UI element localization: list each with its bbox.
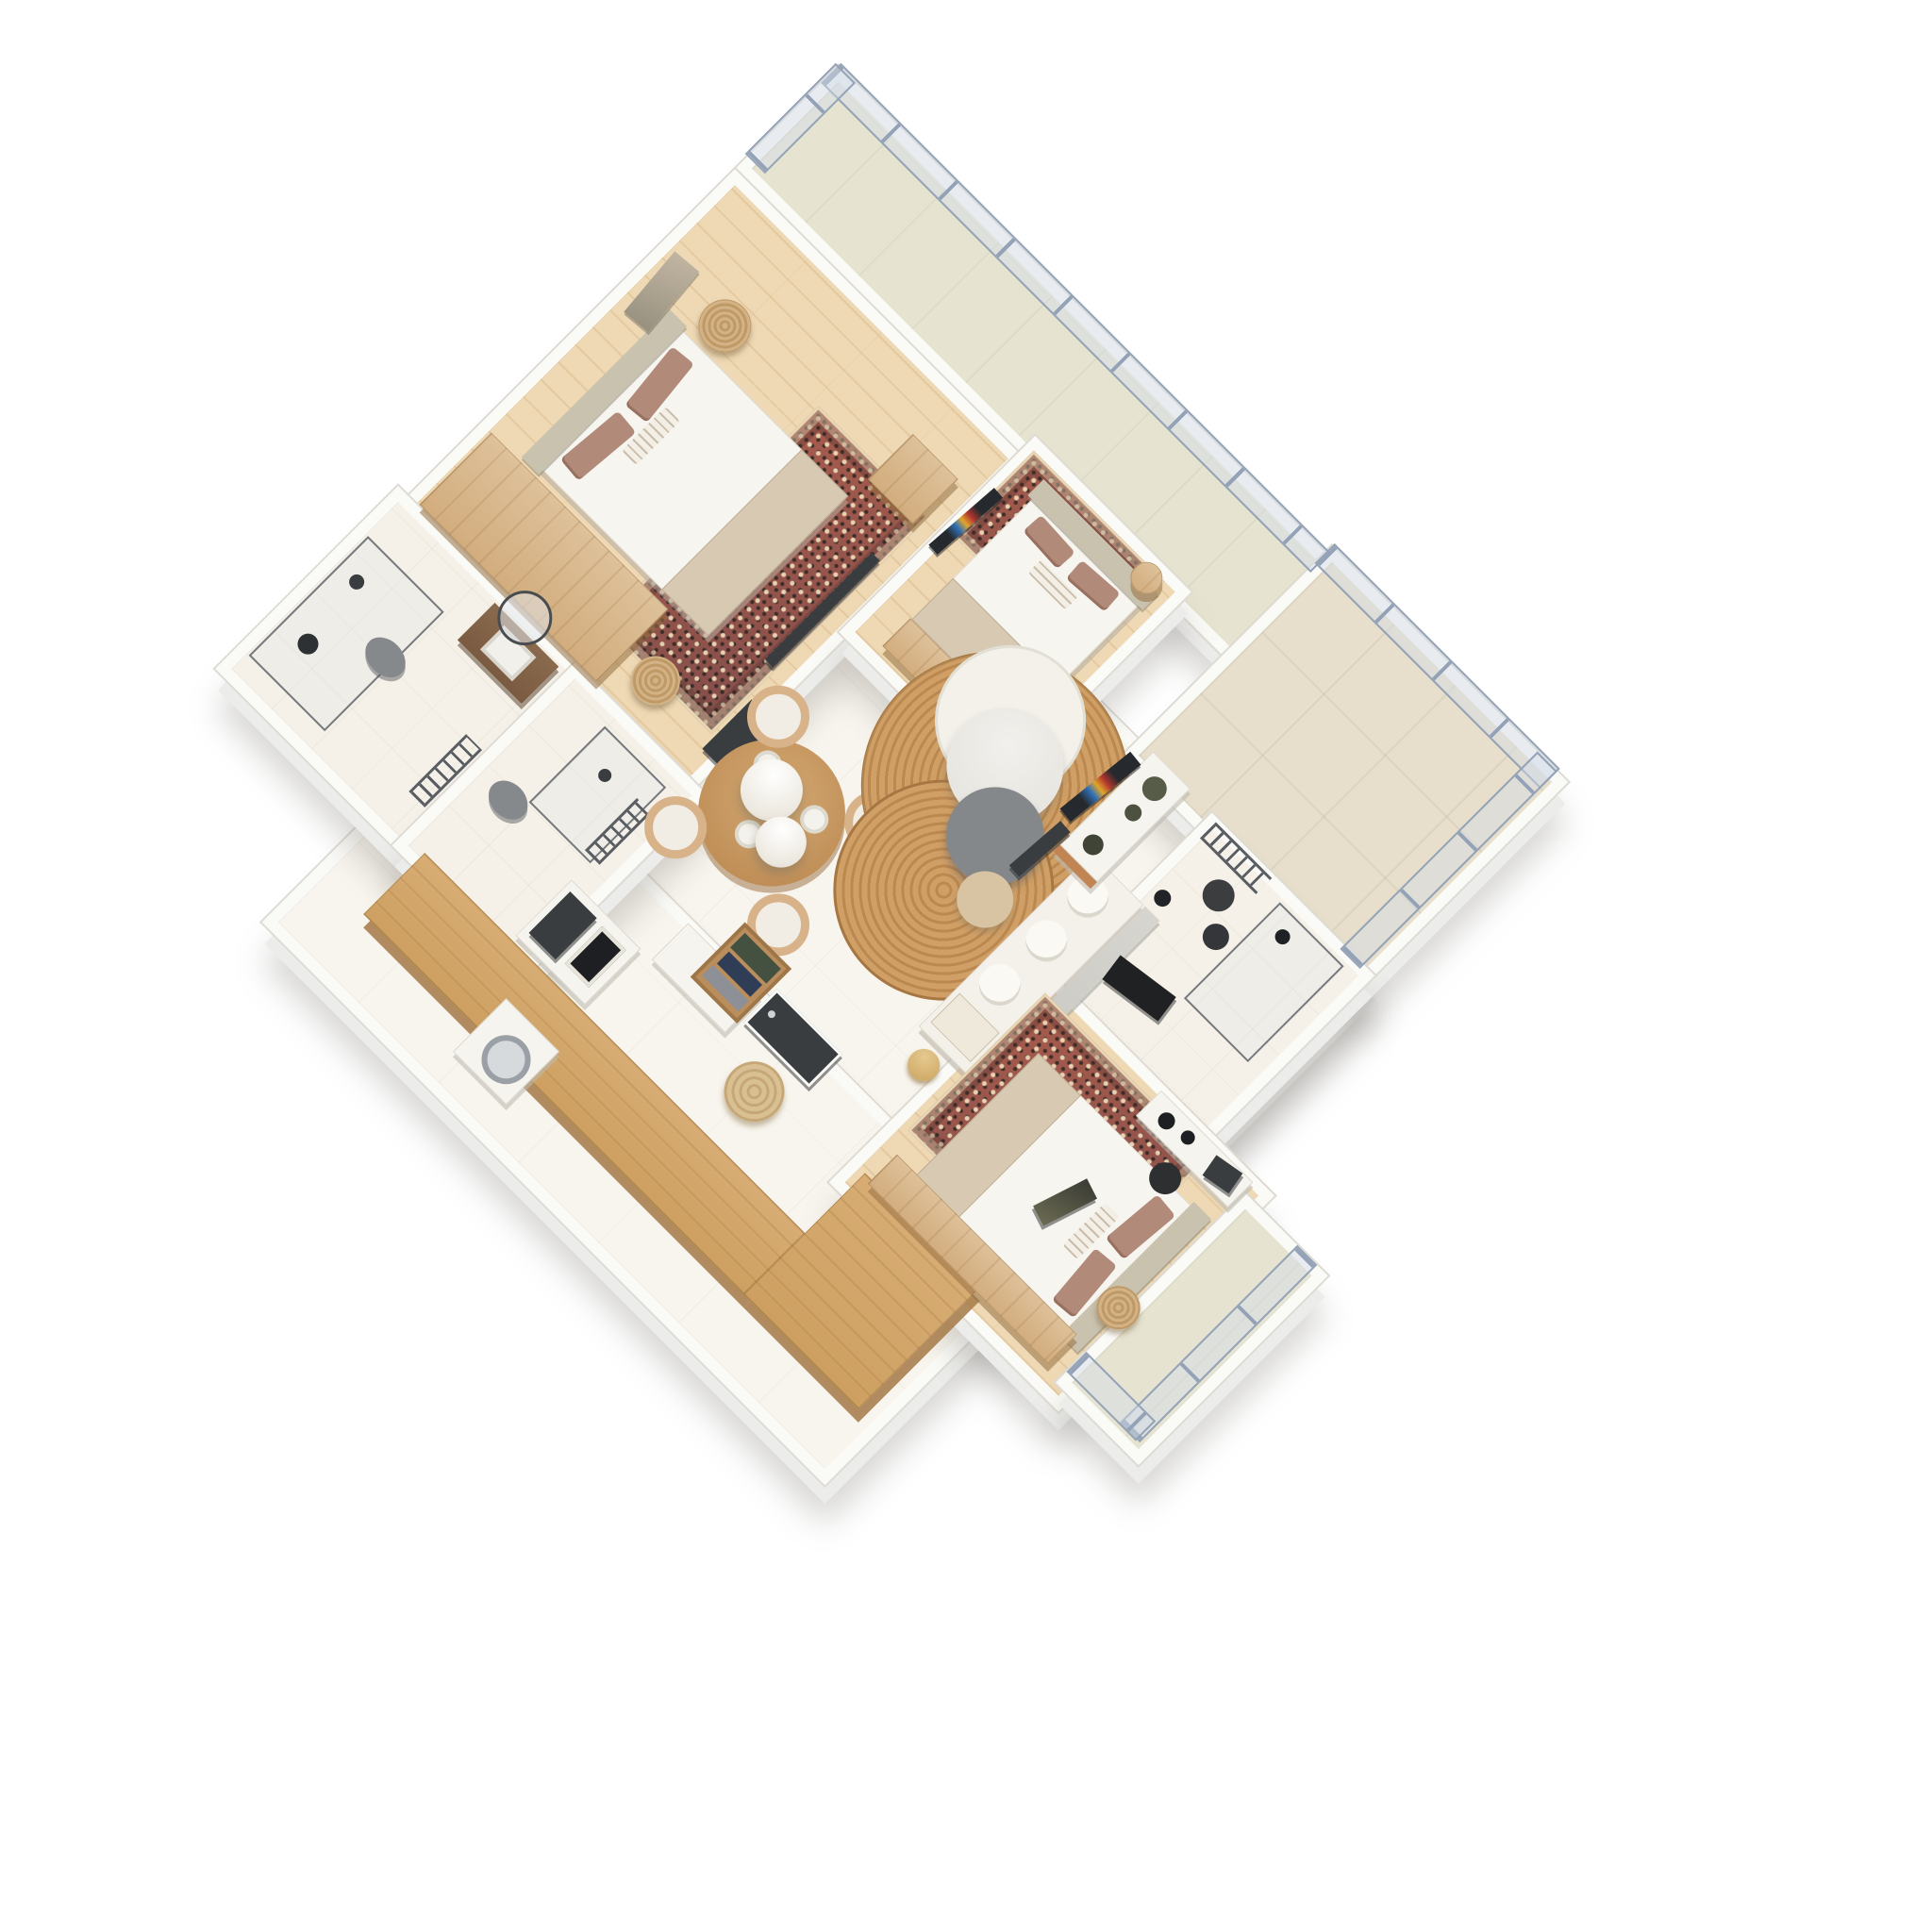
door-handle-icon [766,1008,776,1019]
olive-vase [1137,772,1172,807]
sofa-cushion [1017,911,1075,970]
desk-lamp-icon [1178,1127,1198,1147]
desk-lamp-icon [1155,1109,1178,1133]
isometric-plan [0,0,1932,1780]
olive-vase [1121,801,1144,824]
bedroom-2-lumbar-pillow [1027,559,1078,610]
floor-plan-render [0,0,1932,1932]
sofa-cushion [971,956,1029,1014]
olive-vase [1078,830,1108,859]
